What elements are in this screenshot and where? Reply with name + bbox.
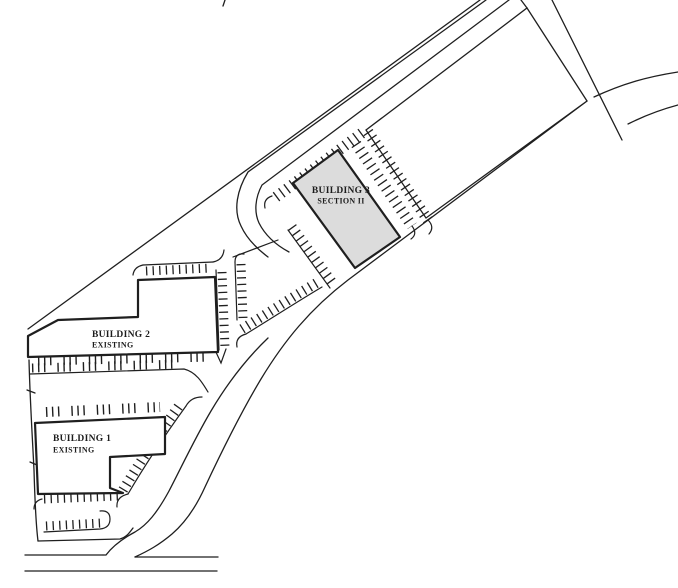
east-road-left-edge [521,0,527,8]
building-1-footprint [35,417,165,494]
west-edge-jog-1 [27,390,35,393]
drive-side-row-curb [246,287,322,334]
east-road-branch-lower-curb [628,105,678,124]
center-island-north-curb [233,240,278,257]
building-3-sublabel: SECTION II [317,197,364,206]
parking-row-south-lot [46,523,102,526]
east-road-branch-upper-curb [594,72,678,97]
parking-row-building2-east [222,272,225,348]
parcel-row-end-hook [428,220,432,234]
building-2-sublabel: EXISTING [92,341,134,350]
parking-row-above-building1 [46,407,160,412]
road-lines-group [25,0,678,571]
parking-row-along-drive [242,282,318,329]
building2-top-row-hook-right [213,250,224,262]
building-3-label: BUILDING 3 [312,186,370,196]
building-1-sublabel: EXISTING [53,446,95,455]
parking-row-below-building1 [44,496,118,499]
site-plan-drawing: BUILDING 3 SECTION II BUILDING 2 EXISTIN… [0,0,678,588]
parking-row-center-west [241,264,243,318]
building1-diagonal-row-hook-top [186,397,202,406]
building2-top-row-hook-left [133,265,143,275]
building-3-footprint [293,150,400,268]
drive-side-row-hook [237,334,246,347]
building-1-label: BUILDING 1 [53,434,111,444]
parking-row-mid-lot [32,364,182,368]
parking-row-building2-top [146,268,211,271]
scan-artifact-mark [223,0,225,6]
building1-diagonal-row-hook-bottom [117,494,128,507]
building2-top-row-curb [143,262,213,265]
building-2-label: BUILDING 2 [92,330,150,340]
vacant-parcel-outline [366,8,587,218]
center-row-west-curb [235,262,237,320]
mid-lot-aisle-curb [30,369,208,392]
road-parking-row-end-hook [265,196,272,208]
center-row-northeast-curb [288,230,330,288]
parking-row-center-northeast [292,227,334,285]
